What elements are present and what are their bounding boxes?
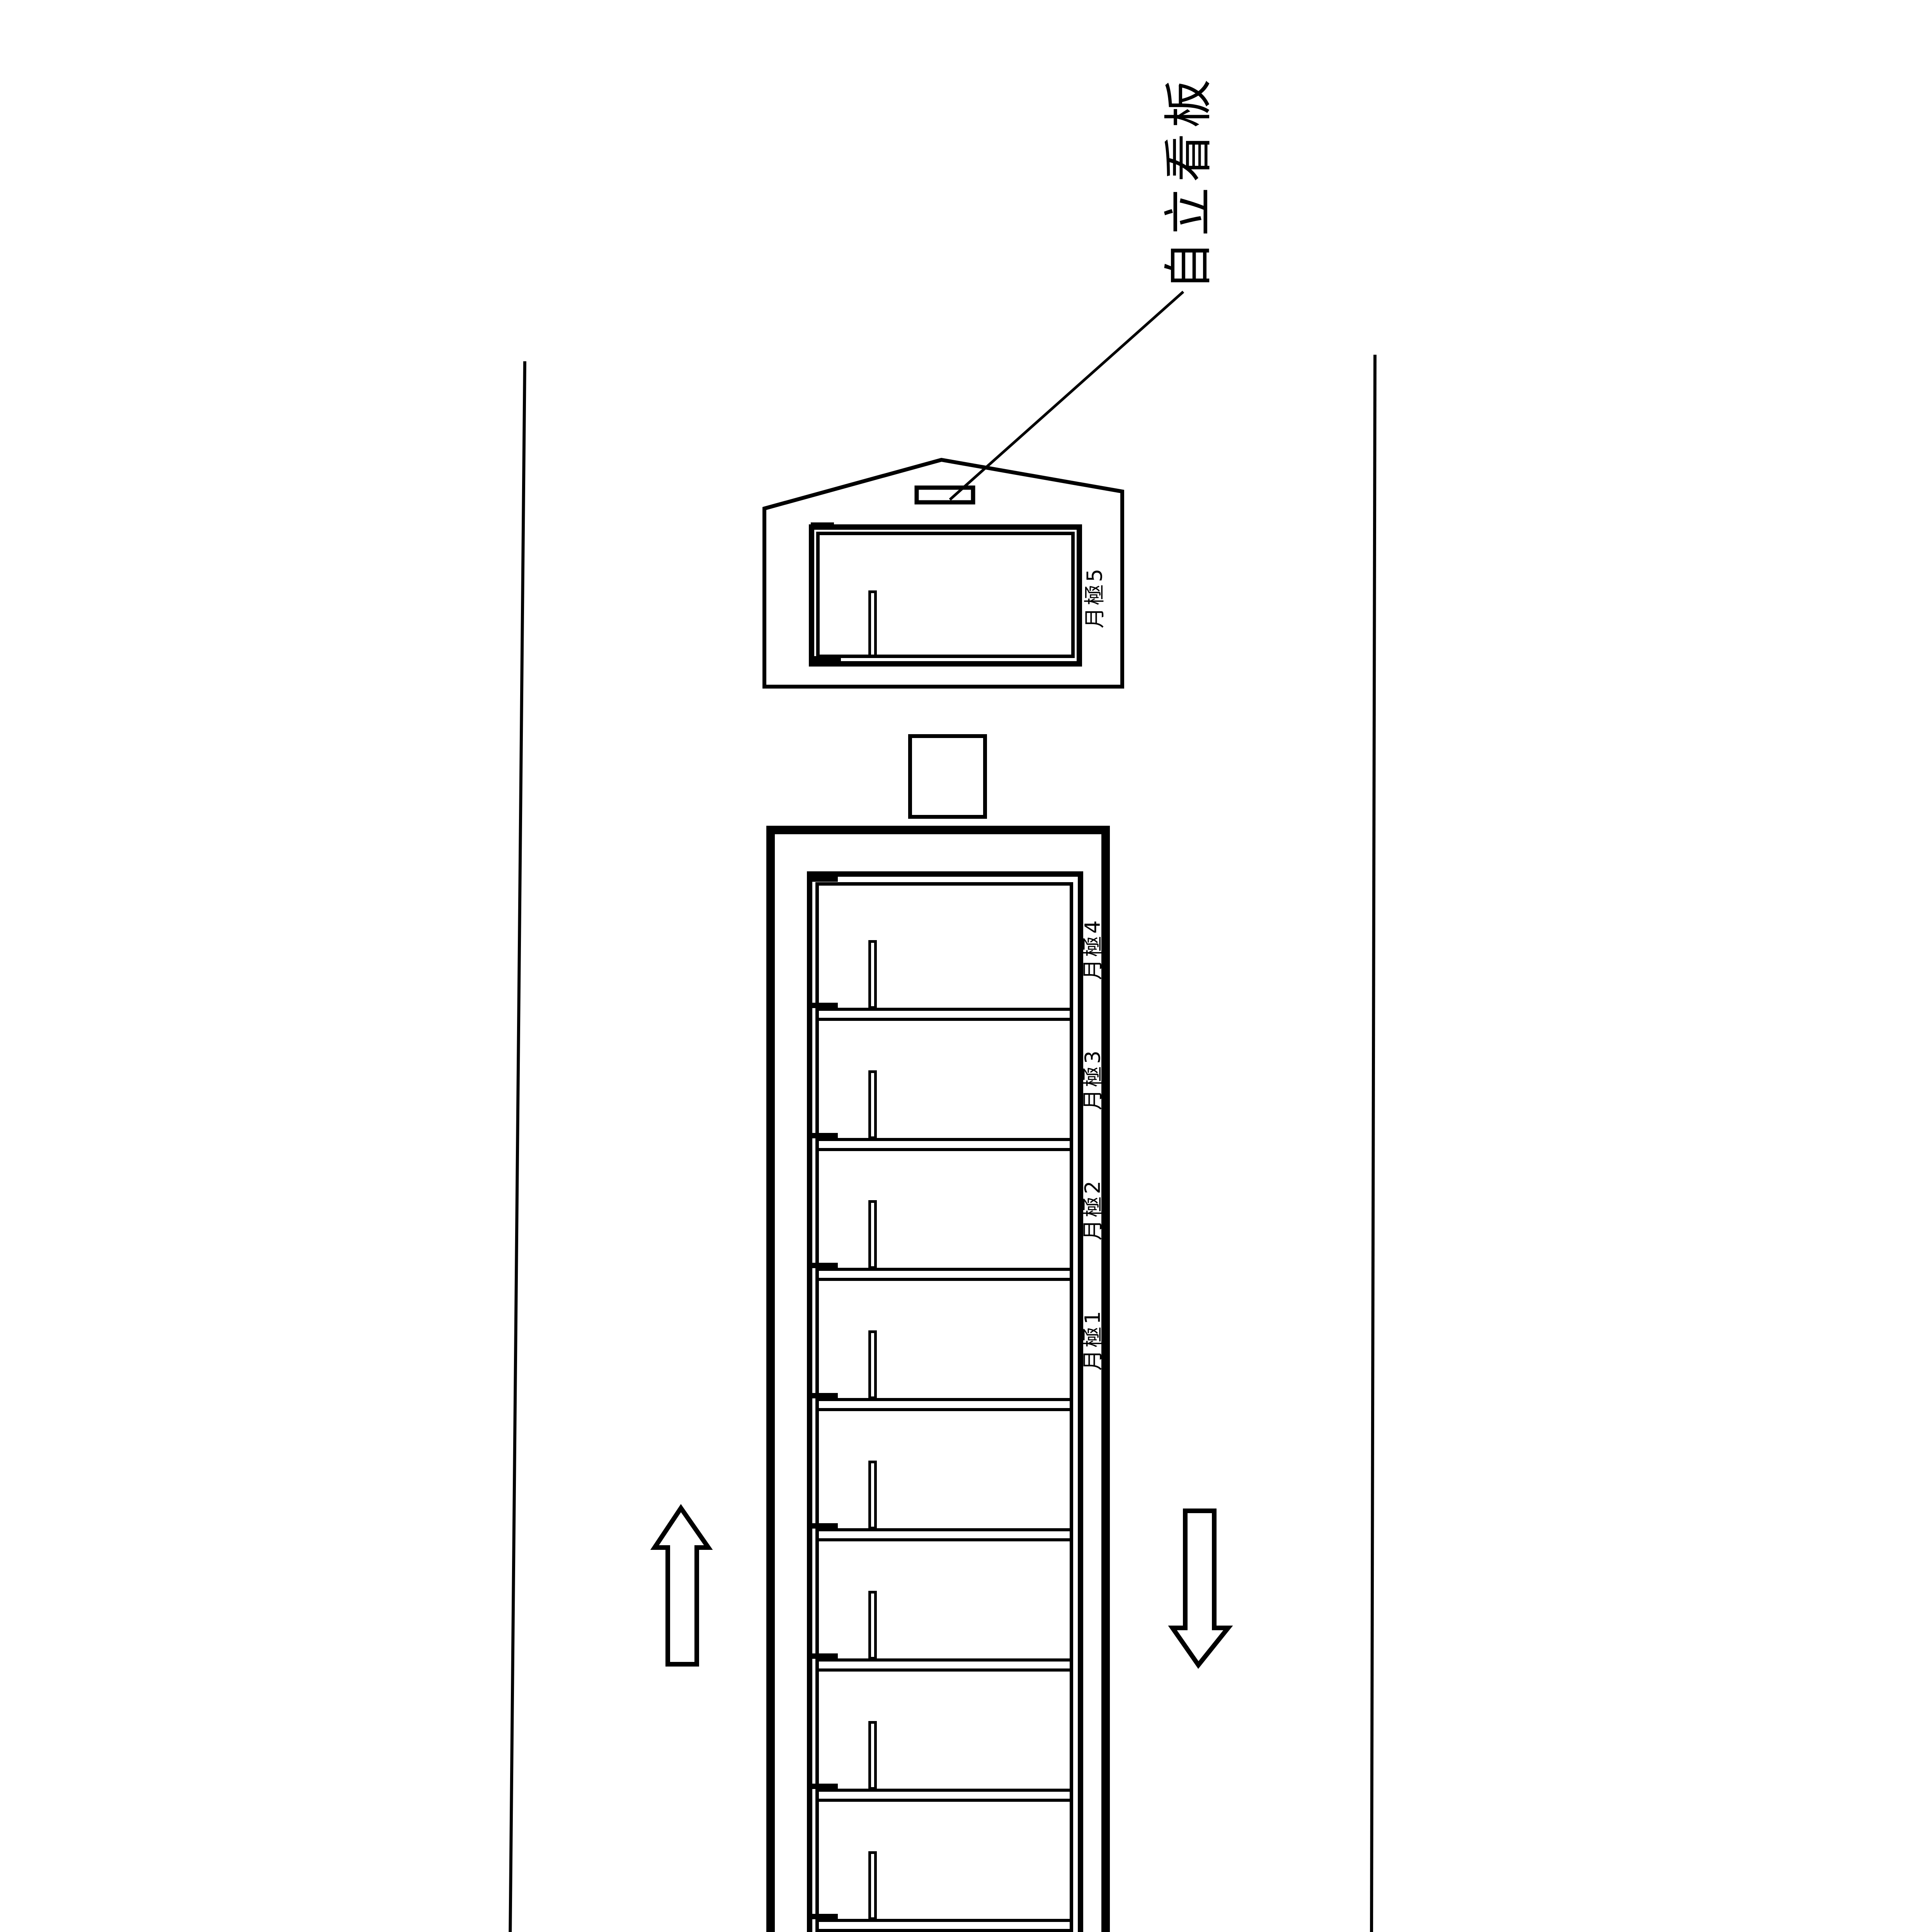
- stall-divider: [817, 1658, 1071, 1672]
- stall-divider-dash: [811, 1784, 838, 1789]
- pentagon-stall-label: 月極5: [1081, 557, 1108, 638]
- stall-tick: [868, 1330, 877, 1399]
- stall-row-label: 月極2: [1079, 1171, 1106, 1248]
- pentagon-stall-tick: [868, 590, 877, 658]
- stall-divider-dash: [811, 1393, 838, 1398]
- pentagon-stall-dash-top: [811, 522, 834, 528]
- stall-divider-dash: [811, 1653, 838, 1659]
- stall-divider-dash: [811, 1914, 838, 1919]
- stall-divider: [817, 1528, 1071, 1541]
- stall-tick: [868, 1851, 877, 1920]
- up-arrow: [655, 1508, 708, 1664]
- stall-row-label: 月極1: [1079, 1301, 1106, 1378]
- stall-divider: [817, 1138, 1071, 1151]
- stall-row-label: 月極3: [1079, 1041, 1106, 1118]
- stall-tick: [868, 1721, 877, 1790]
- stall-divider: [817, 1789, 1071, 1802]
- pentagon-stall-inner-rect: [816, 532, 1075, 658]
- stall-tick: [868, 940, 877, 1009]
- stall-divider: [817, 1919, 1071, 1932]
- stall-tick: [868, 1200, 877, 1269]
- stall-divider-dash: [811, 1523, 838, 1529]
- leader-freestanding-sign: [950, 292, 1183, 500]
- stall-divider: [817, 1008, 1071, 1021]
- stall-row-label: 月極4: [1079, 910, 1106, 988]
- stall-divider-dash: [811, 1263, 838, 1268]
- stall-divider: [817, 1398, 1071, 1411]
- stall-tick: [868, 1461, 877, 1529]
- site-plan-canvas: 自立看板 料金案内看板 精算機 P看板 照明 月極5 月極4月極3月極2月極1: [0, 0, 1916, 1932]
- pentagon-stall-dash-bottom: [811, 656, 841, 662]
- road-edge-right-line: [1370, 355, 1375, 1932]
- stall-divider-dash: [811, 1133, 838, 1138]
- freestanding-sign-label: 自立看板: [1160, 62, 1218, 302]
- stall-divider: [817, 1268, 1071, 1281]
- stall-divider-dash: [811, 1003, 838, 1008]
- road-edge-left-line: [504, 361, 525, 1932]
- stall-edge-dash: [811, 876, 838, 882]
- stall-tick: [868, 1591, 877, 1660]
- down-arrow: [1172, 1511, 1228, 1665]
- freestanding-signboard-rect: [917, 488, 973, 502]
- stall-tick: [868, 1070, 877, 1139]
- square-structure-top: [908, 734, 987, 819]
